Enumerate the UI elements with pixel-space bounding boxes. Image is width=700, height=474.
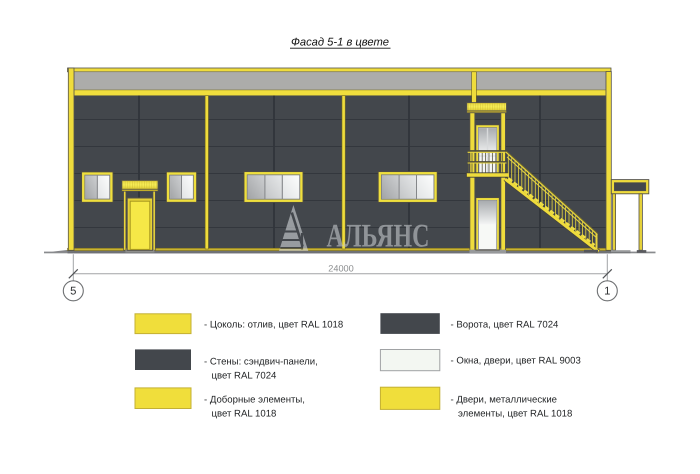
svg-text:24000: 24000	[328, 263, 354, 273]
svg-text:- Стены: сэндвич-панели,: - Стены: сэндвич-панели,	[204, 357, 318, 368]
svg-text:5: 5	[70, 286, 76, 298]
svg-text:цвет RAL 1018: цвет RAL 1018	[212, 409, 277, 420]
svg-text:- Окна, двери, цвет RAL 9003: - Окна, двери, цвет RAL 9003	[451, 356, 581, 367]
svg-text:- Ворота, цвет RAL 7024: - Ворота, цвет RAL 7024	[451, 320, 560, 331]
svg-text:АЛЬЯНС: АЛЬЯНС	[327, 218, 430, 254]
svg-text:- Доборные элементы,: - Доборные элементы,	[204, 395, 305, 406]
svg-text:- Цоколь: отлив, цвет RAL 1018: - Цоколь: отлив, цвет RAL 1018	[204, 320, 343, 331]
svg-text:1: 1	[604, 286, 610, 298]
svg-text:цвет RAL 7024: цвет RAL 7024	[212, 371, 278, 382]
svg-text:элементы, цвет RAL 1018: элементы, цвет RAL 1018	[458, 409, 572, 420]
svg-text:- Двери, металлические: - Двери, металлические	[451, 395, 558, 406]
svg-text:Фасад 5-1 в цвете: Фасад 5-1 в цвете	[291, 37, 389, 49]
